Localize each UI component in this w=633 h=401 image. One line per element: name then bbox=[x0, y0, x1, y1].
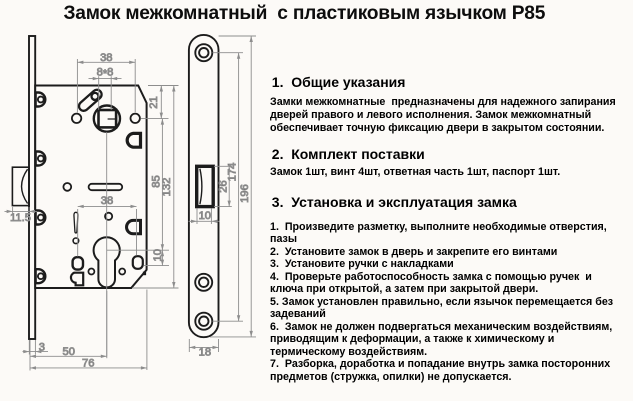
svg-text:21: 21 bbox=[148, 96, 160, 108]
svg-text:132: 132 bbox=[161, 178, 173, 197]
svg-text:18: 18 bbox=[199, 346, 211, 358]
svg-text:174: 174 bbox=[227, 163, 239, 182]
svg-text:8*8: 8*8 bbox=[97, 66, 114, 80]
svg-text:196: 196 bbox=[239, 184, 251, 203]
svg-text:50: 50 bbox=[62, 346, 74, 358]
svg-text:3: 3 bbox=[39, 341, 45, 353]
svg-text:10: 10 bbox=[199, 210, 211, 222]
svg-text:11.5: 11.5 bbox=[10, 212, 31, 224]
svg-text:10: 10 bbox=[152, 249, 164, 261]
svg-text:38: 38 bbox=[100, 52, 112, 64]
svg-text:76: 76 bbox=[82, 358, 94, 370]
